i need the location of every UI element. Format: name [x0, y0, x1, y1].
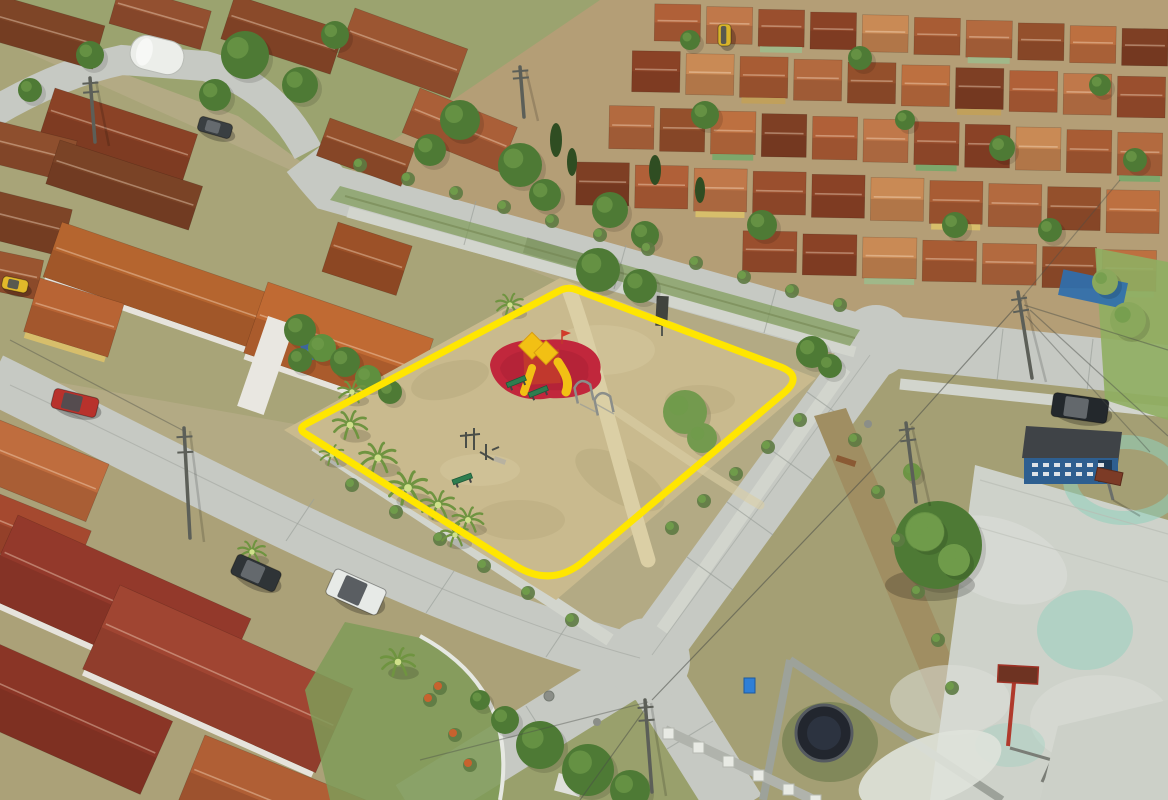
- house: [739, 56, 788, 104]
- roof-ridge: [813, 29, 853, 30]
- vent-block: [1054, 463, 1060, 467]
- shrub-highlight: [478, 560, 486, 568]
- palm-crown: [395, 659, 402, 666]
- roof-shade: [914, 143, 959, 165]
- vent-block: [1087, 463, 1093, 467]
- roof-shade: [802, 254, 856, 275]
- roof-shade: [901, 85, 949, 106]
- roof-ridge: [638, 184, 685, 185]
- shrub-highlight: [402, 173, 410, 181]
- roof-ridge: [866, 256, 914, 257]
- roof-shade: [966, 39, 1012, 58]
- house: [1015, 127, 1061, 171]
- roof-ridge: [714, 130, 753, 131]
- roof-ridge: [756, 191, 803, 192]
- tree-highlight: [291, 351, 302, 362]
- tree-highlight: [691, 427, 705, 441]
- house: [1122, 28, 1168, 66]
- roof-ridge: [866, 138, 905, 139]
- house: [914, 17, 961, 55]
- house-wall-accent: [712, 154, 753, 161]
- tree-highlight: [1092, 77, 1102, 87]
- roof-shade: [862, 33, 908, 52]
- tree-highlight: [751, 214, 765, 228]
- palm-crown: [349, 389, 354, 394]
- tree-highlight: [569, 751, 592, 774]
- vent-block: [1087, 472, 1093, 476]
- roof-shade: [758, 28, 804, 47]
- shrub-highlight: [794, 414, 802, 422]
- vent-block: [1076, 463, 1082, 467]
- tree-highlight: [1041, 221, 1052, 232]
- shrub-highlight: [434, 533, 442, 541]
- house: [901, 65, 950, 107]
- roof-shade: [914, 36, 960, 55]
- palm-crown: [507, 302, 512, 307]
- car-windows: [721, 26, 726, 44]
- shrub-highlight: [786, 285, 794, 293]
- court-teal-circle-2: [1037, 590, 1133, 670]
- roof-shade: [862, 258, 916, 279]
- manhole-cover-2: [864, 420, 872, 428]
- house: [1070, 26, 1117, 64]
- roof-ridge: [1045, 265, 1093, 266]
- roof-shade: [810, 30, 856, 49]
- vent-block: [1032, 472, 1038, 476]
- shrub-highlight: [690, 257, 698, 265]
- roof-ridge: [579, 181, 626, 182]
- tree-highlight: [635, 225, 648, 238]
- palm-crown: [404, 484, 412, 492]
- tree-highlight: [334, 351, 348, 365]
- conifer-tree: [550, 123, 562, 157]
- shrub-highlight: [892, 534, 900, 542]
- palm-crown: [347, 422, 354, 429]
- tree-highlight: [21, 81, 32, 92]
- tree-highlight: [473, 693, 482, 702]
- crossarm: [512, 70, 528, 71]
- house: [793, 59, 842, 101]
- tree-highlight: [851, 49, 862, 60]
- wall-pillar: [723, 756, 734, 767]
- roof-ridge: [797, 78, 839, 79]
- shrub-highlight: [594, 229, 602, 237]
- conifer-tree: [649, 155, 661, 185]
- crossarm: [83, 91, 99, 92]
- roof-ridge: [969, 37, 1009, 38]
- roof-ridge: [765, 133, 804, 134]
- roof-ridge: [1120, 95, 1162, 96]
- house: [922, 240, 977, 282]
- roof-ridge: [1013, 89, 1055, 90]
- house: [988, 184, 1042, 228]
- roof-ridge: [709, 23, 749, 24]
- trampoline-mat: [807, 716, 841, 750]
- roof-shade: [870, 199, 923, 221]
- shrub-highlight: [346, 479, 354, 487]
- roof-shade: [635, 187, 688, 209]
- roof-ridge: [917, 34, 957, 35]
- tree-highlight: [683, 33, 692, 42]
- house: [686, 54, 735, 96]
- house-wall-accent: [1119, 175, 1160, 182]
- house-wall-accent: [916, 165, 957, 172]
- crossarm: [639, 720, 655, 721]
- roof-ridge: [933, 200, 980, 201]
- roof-ridge: [1109, 209, 1156, 210]
- roof-shade: [1015, 148, 1060, 170]
- house: [761, 114, 807, 158]
- crossarm: [177, 452, 193, 453]
- shrub-highlight: [762, 441, 770, 449]
- roof-ridge: [874, 197, 921, 198]
- flower-shrub: [449, 729, 457, 737]
- roof-shade: [811, 196, 864, 218]
- roof-shade: [1117, 97, 1165, 118]
- roof-ridge: [635, 69, 677, 70]
- tree-highlight: [287, 72, 303, 88]
- house-wall-accent: [741, 97, 785, 104]
- house: [966, 20, 1013, 64]
- conifer-tree: [567, 148, 577, 176]
- shrub-highlight: [450, 187, 458, 195]
- house-wall-accent: [957, 109, 1001, 116]
- palm-crown: [435, 502, 442, 509]
- roof-ridge: [815, 194, 862, 195]
- roof-shade: [761, 135, 806, 157]
- house: [810, 12, 857, 50]
- shrub-highlight: [698, 495, 706, 503]
- roof-shade: [1066, 151, 1111, 173]
- roof-shade: [955, 88, 1003, 109]
- house: [609, 106, 655, 150]
- crossarm: [82, 82, 98, 83]
- roof-ridge: [658, 21, 698, 22]
- roof-shade: [982, 264, 1036, 285]
- conifer-tree: [695, 177, 705, 203]
- roof-shade: [660, 130, 705, 152]
- house-wall-accent: [695, 211, 744, 218]
- tree-highlight: [495, 710, 508, 723]
- house: [1066, 130, 1112, 174]
- tree-highlight: [1095, 272, 1107, 284]
- house: [812, 116, 858, 160]
- vent-block: [1043, 472, 1049, 476]
- house: [758, 9, 805, 53]
- house: [1018, 23, 1065, 61]
- house-wall-accent: [864, 278, 914, 285]
- tree-highlight: [1126, 151, 1137, 162]
- car-windows: [1063, 396, 1089, 419]
- roof-shade: [739, 77, 787, 98]
- roof-shade: [922, 261, 976, 282]
- tree-highlight: [800, 340, 814, 354]
- roof-ridge: [905, 83, 947, 84]
- tree-highlight: [911, 518, 928, 535]
- roof-shade: [710, 132, 755, 154]
- tree-highlight: [627, 273, 642, 288]
- shrub-highlight: [738, 271, 746, 279]
- roof-ridge: [917, 141, 956, 142]
- roof-shade: [609, 127, 654, 149]
- flower-shrub: [434, 682, 442, 690]
- roof-ridge: [1050, 206, 1097, 207]
- flower-shrub: [464, 759, 472, 767]
- house: [1009, 70, 1058, 112]
- wall-pillar: [810, 795, 821, 800]
- roof-ridge: [1019, 146, 1058, 147]
- tree-highlight: [533, 183, 547, 197]
- shrub-highlight: [666, 522, 674, 530]
- crossarm: [513, 77, 529, 78]
- tree-highlight: [288, 318, 302, 332]
- house-wall-accent: [760, 46, 802, 53]
- roof-ridge: [959, 86, 1001, 87]
- intersection-south: [606, 618, 690, 702]
- palm-crown: [374, 454, 381, 461]
- tree-highlight: [522, 727, 544, 749]
- court-worn-patch: [890, 665, 1010, 735]
- house: [862, 237, 917, 285]
- manhole-cover-3: [593, 718, 601, 726]
- tree-highlight: [992, 138, 1004, 150]
- tree-highlight: [582, 254, 602, 274]
- wall-pillar: [663, 728, 674, 739]
- house: [982, 243, 1037, 285]
- roof-ridge: [851, 81, 893, 82]
- shrub-highlight: [730, 468, 738, 476]
- house: [632, 51, 681, 93]
- tree-highlight: [695, 105, 708, 118]
- shrub-highlight: [872, 486, 880, 494]
- tree-highlight: [615, 775, 633, 793]
- flower-shrub: [424, 694, 432, 702]
- roof-ridge: [689, 72, 731, 73]
- shrub-highlight: [566, 614, 574, 622]
- shrub-highlight: [522, 587, 530, 595]
- roof-shade: [793, 80, 841, 101]
- roof-shade: [988, 205, 1041, 227]
- house: [914, 122, 960, 172]
- manhole-cover: [544, 691, 554, 701]
- lot-patch: [440, 454, 520, 486]
- palm-crown: [249, 549, 254, 554]
- roof-ridge: [926, 259, 974, 260]
- roof-shade: [686, 74, 734, 95]
- shrub-highlight: [912, 586, 920, 594]
- shrub-highlight: [946, 682, 954, 690]
- house: [811, 174, 865, 218]
- roof-ridge: [612, 125, 651, 126]
- roof-ridge: [992, 203, 1039, 204]
- tree-highlight: [445, 105, 463, 123]
- tree-highlight: [325, 25, 338, 38]
- roof-ridge: [815, 136, 854, 137]
- tree-highlight: [418, 138, 432, 152]
- roof-ridge: [865, 31, 905, 32]
- aerial-photo-canvas: [0, 0, 1168, 800]
- wall-pillar: [693, 742, 704, 753]
- roof-ridge: [1125, 45, 1165, 46]
- roof-shade: [742, 251, 796, 272]
- aerial-photo: [0, 0, 1168, 800]
- house: [870, 177, 924, 221]
- roof-shade: [1122, 47, 1168, 66]
- roof-ridge: [1073, 42, 1113, 43]
- house: [802, 234, 857, 276]
- shrub-highlight: [390, 506, 398, 514]
- house: [862, 15, 909, 53]
- wall-pillar: [783, 784, 794, 795]
- lot-patch: [475, 500, 565, 540]
- vent-block: [1098, 463, 1104, 467]
- roof-shade: [1106, 211, 1159, 233]
- tree-highlight: [597, 197, 613, 213]
- palm-crown: [465, 517, 471, 523]
- crossarm: [176, 436, 192, 437]
- roof-shade: [1018, 41, 1064, 60]
- roof-ridge: [1070, 149, 1109, 150]
- tree-highlight: [227, 37, 249, 59]
- tree-highlight: [821, 357, 832, 368]
- shrub-highlight: [849, 434, 857, 442]
- house: [635, 165, 689, 209]
- roof-ridge: [743, 75, 785, 76]
- shrub-highlight: [546, 215, 554, 223]
- shrub-highlight: [834, 299, 842, 307]
- tree-highlight: [898, 113, 907, 122]
- crossarm: [638, 707, 654, 708]
- palm-crown: [452, 532, 457, 537]
- vent-block: [1054, 472, 1060, 476]
- roof-ridge: [761, 26, 801, 27]
- roof-shade: [632, 71, 680, 92]
- tree-highlight: [358, 368, 370, 380]
- roof-ridge: [663, 128, 702, 129]
- roof-ridge: [746, 249, 794, 250]
- house: [1106, 190, 1160, 234]
- roof-ridge: [985, 262, 1033, 263]
- roof-shade: [1009, 91, 1057, 112]
- vent-block: [1065, 463, 1071, 467]
- vent-block: [1032, 463, 1038, 467]
- roof-ridge: [806, 252, 854, 253]
- shrub-highlight: [642, 243, 650, 251]
- tree-highlight: [203, 83, 217, 97]
- shrub-highlight: [498, 201, 506, 209]
- tree-highlight: [669, 396, 689, 416]
- roof-shade: [812, 138, 857, 160]
- tree-highlight: [945, 215, 957, 227]
- shrub-highlight: [932, 634, 940, 642]
- shrub-highlight: [354, 159, 362, 167]
- portable-toilet: [744, 678, 755, 693]
- roof-shade: [847, 83, 895, 104]
- wall-pillar: [753, 770, 764, 781]
- tree-highlight: [504, 149, 524, 169]
- tree-highlight: [80, 45, 93, 58]
- vent-block: [1043, 463, 1049, 467]
- house: [1117, 76, 1166, 118]
- roof-shade: [863, 140, 908, 162]
- tree-highlight: [942, 548, 956, 562]
- vent-block: [1065, 472, 1071, 476]
- roof-shade: [1070, 44, 1116, 63]
- house-wall-accent: [968, 57, 1010, 64]
- vent-block: [1076, 472, 1082, 476]
- roof-ridge: [1021, 40, 1061, 41]
- tree-highlight: [312, 338, 325, 351]
- tree-highlight: [1115, 307, 1131, 323]
- house: [752, 171, 806, 215]
- house: [955, 68, 1004, 116]
